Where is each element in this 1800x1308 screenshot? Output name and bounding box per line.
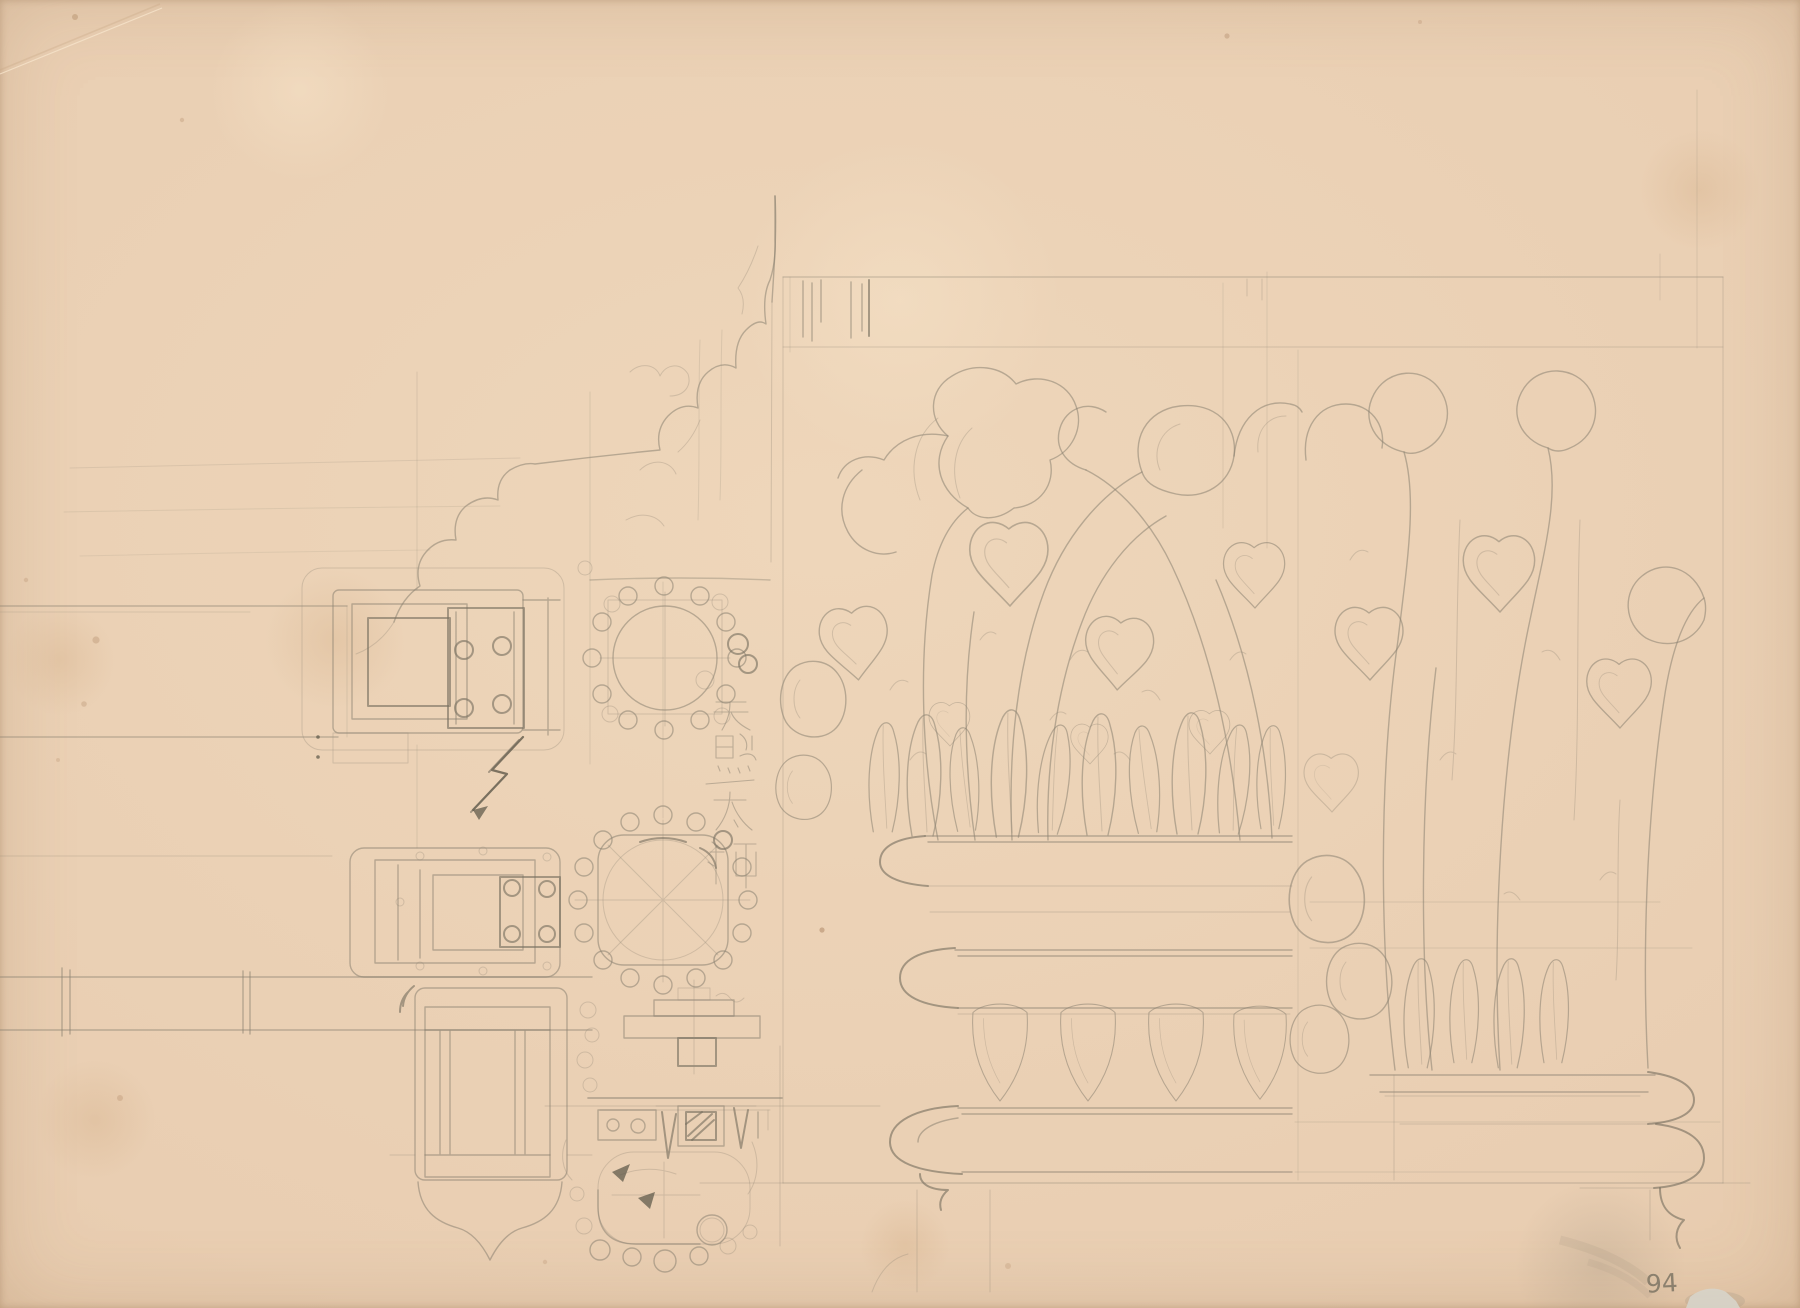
pencil-smudges xyxy=(64,458,520,556)
direction-arrow-sketch xyxy=(471,737,523,820)
bottom-edge-white-patch xyxy=(1686,1289,1740,1308)
sketch-canvas: 94 xyxy=(0,0,1800,1308)
column-plan-square xyxy=(569,806,757,994)
ogee-arch-profile-sketch xyxy=(356,196,776,654)
drawing-sheet: 94 xyxy=(0,0,1800,1308)
paper-mottling xyxy=(5,0,1760,1308)
corner-crease xyxy=(0,4,162,74)
column-plan-partial xyxy=(570,1152,757,1272)
stepped-section-detail xyxy=(624,980,760,1074)
capital-elevation-right xyxy=(1289,371,1705,1248)
bracket-fitting-bottom xyxy=(390,986,599,1180)
pendant-bracket-profile xyxy=(418,1182,562,1260)
bracket-fitting-middle xyxy=(350,847,560,977)
beam-band-lower-left xyxy=(0,968,592,1036)
